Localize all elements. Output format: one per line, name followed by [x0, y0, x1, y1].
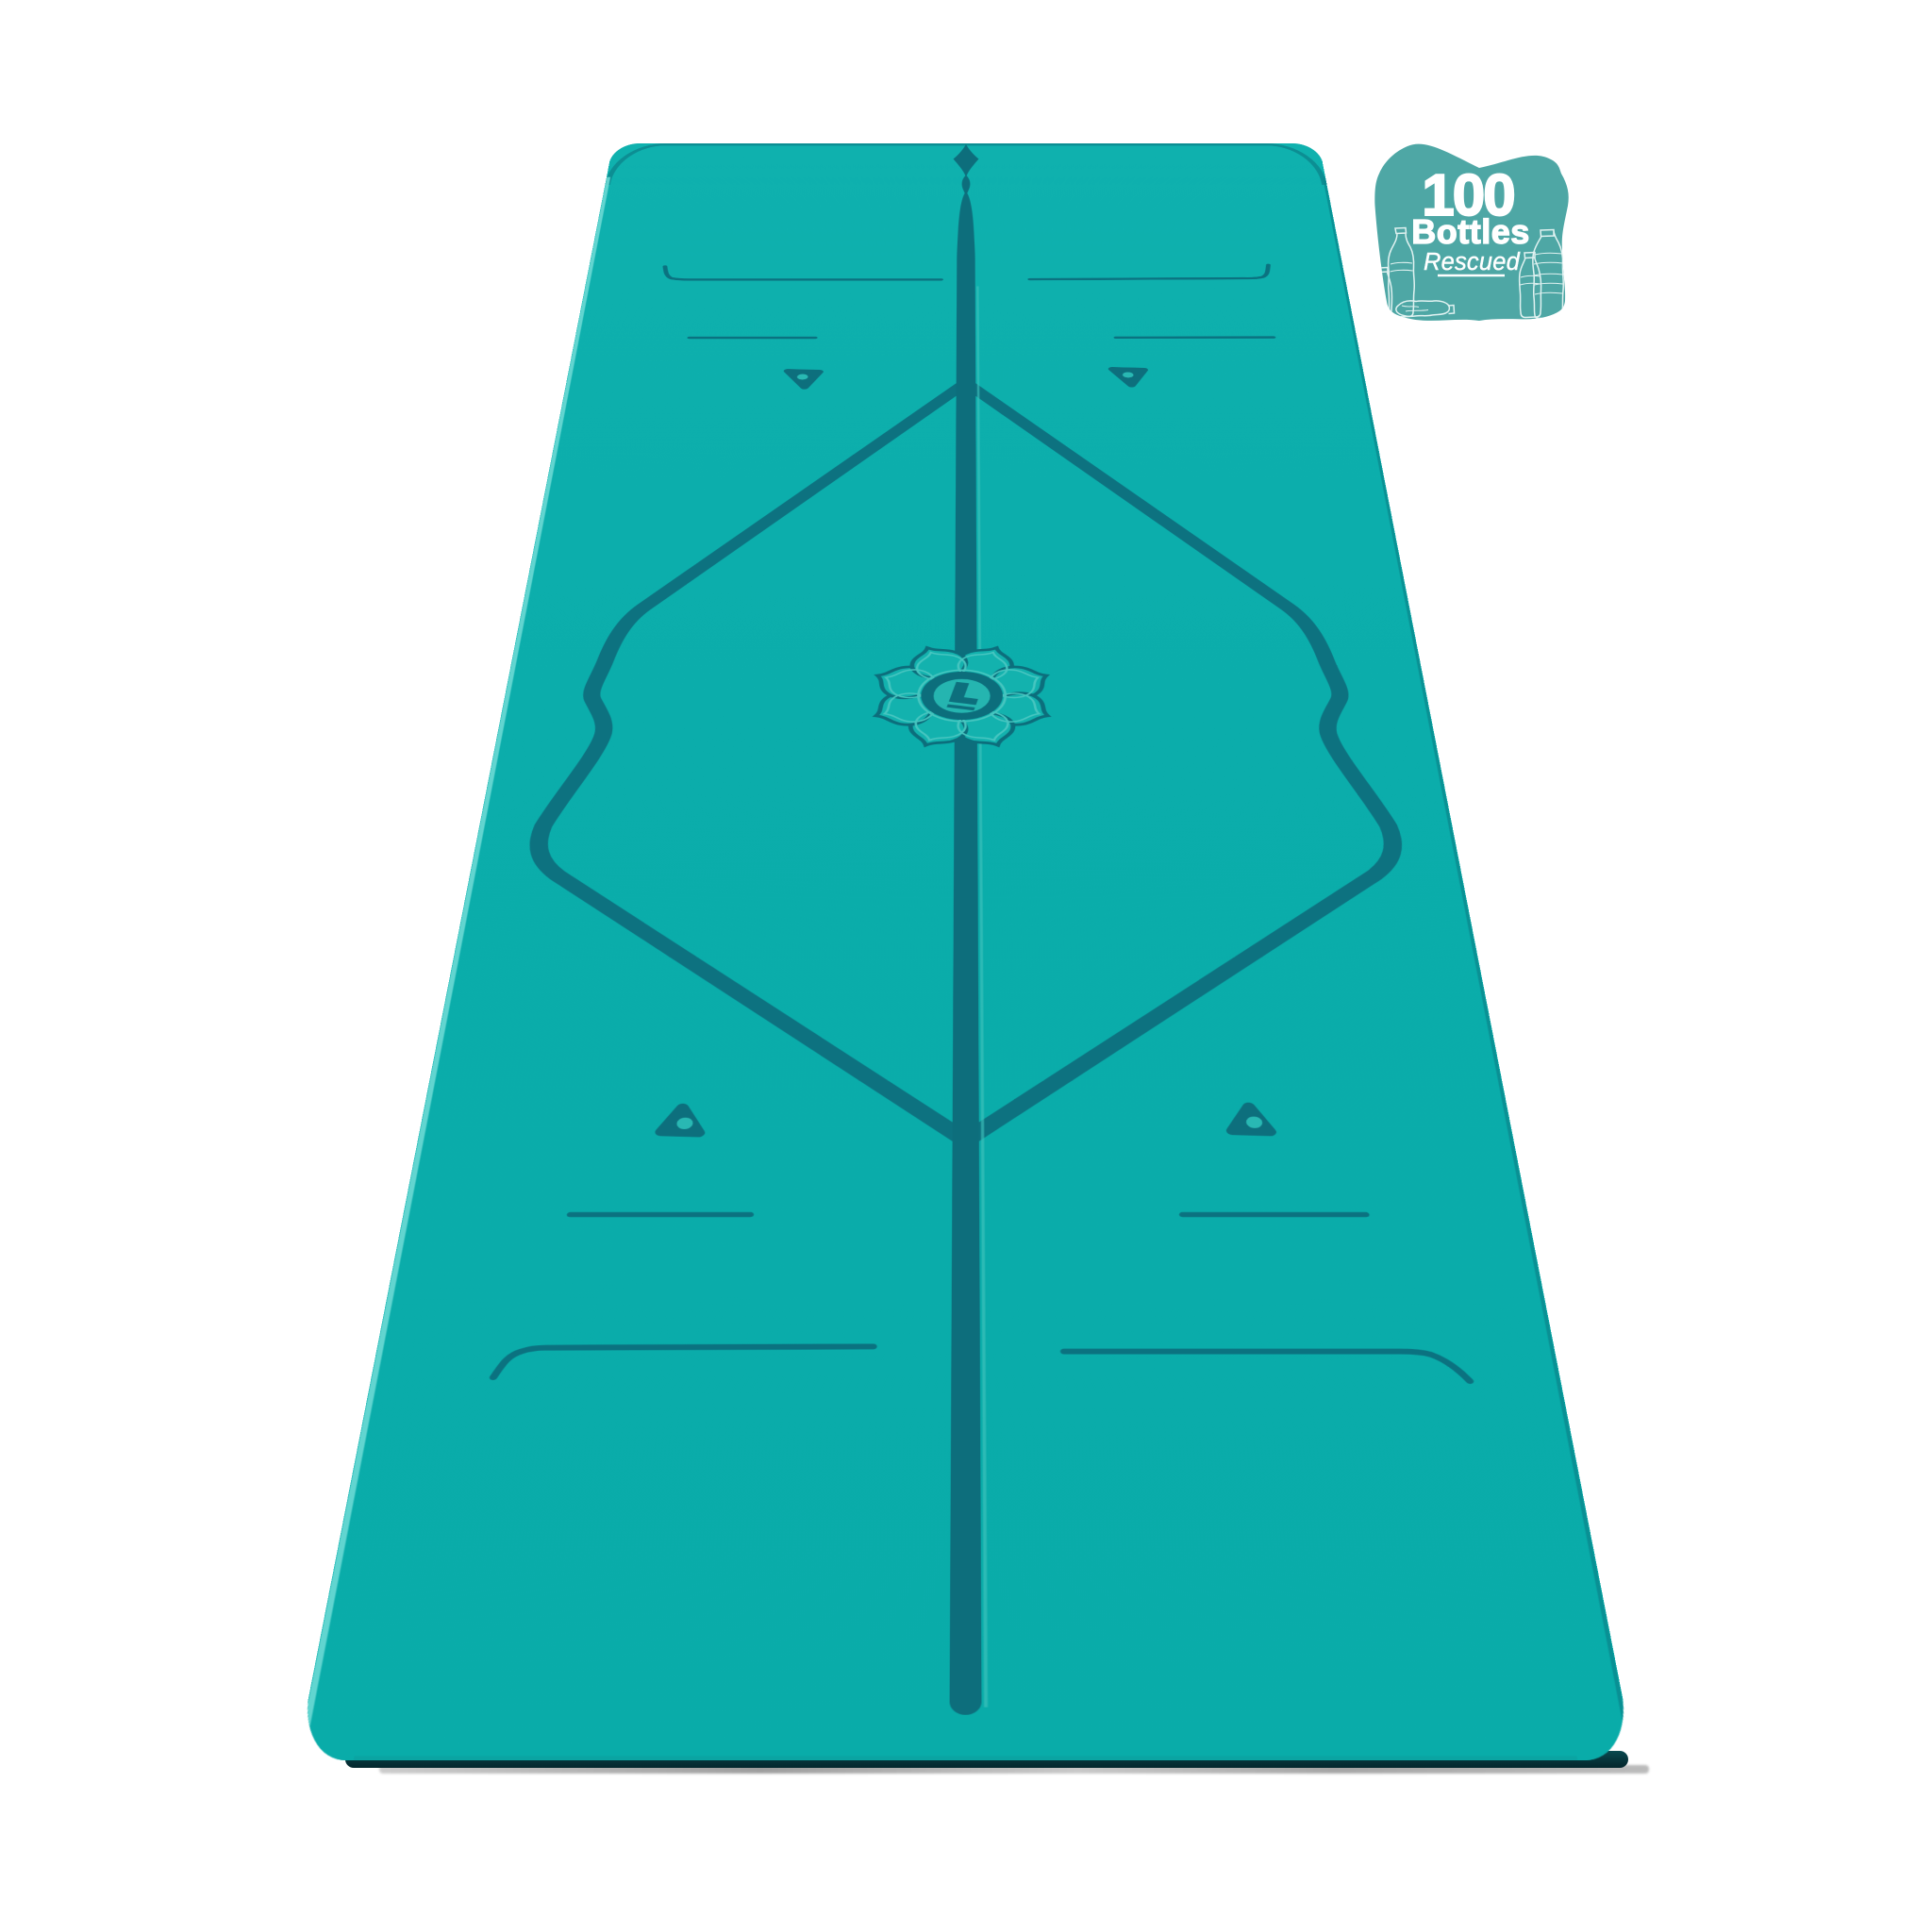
svg-text:Rescued: Rescued [1424, 249, 1521, 275]
svg-text:Bottles: Bottles [1411, 212, 1530, 251]
